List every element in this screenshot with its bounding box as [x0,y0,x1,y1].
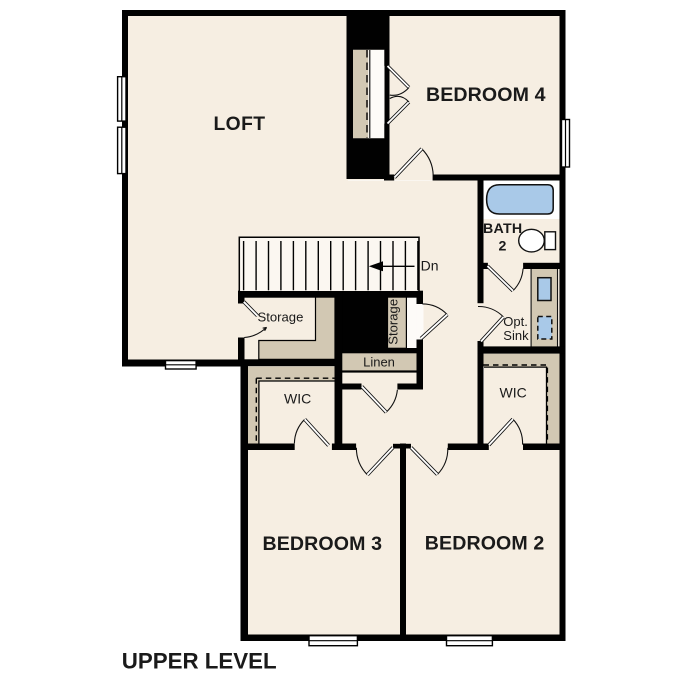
svg-text:Storage: Storage [385,299,400,345]
svg-text:WIC: WIC [499,385,526,401]
svg-text:LOFT: LOFT [214,114,266,135]
svg-text:UPPER LEVEL: UPPER LEVEL [122,649,277,674]
svg-text:Opt.: Opt. [503,314,528,329]
svg-text:BEDROOM 2: BEDROOM 2 [425,533,545,555]
svg-text:Sink: Sink [503,328,529,343]
svg-text:WIC: WIC [284,391,311,407]
svg-text:Dn: Dn [421,257,439,273]
svg-text:BATH: BATH [483,221,522,237]
svg-text:Linen: Linen [363,355,395,370]
svg-text:2: 2 [499,239,507,255]
svg-text:BEDROOM 3: BEDROOM 3 [263,533,383,555]
svg-text:Storage: Storage [258,310,304,325]
svg-text:BEDROOM 4: BEDROOM 4 [426,84,546,106]
